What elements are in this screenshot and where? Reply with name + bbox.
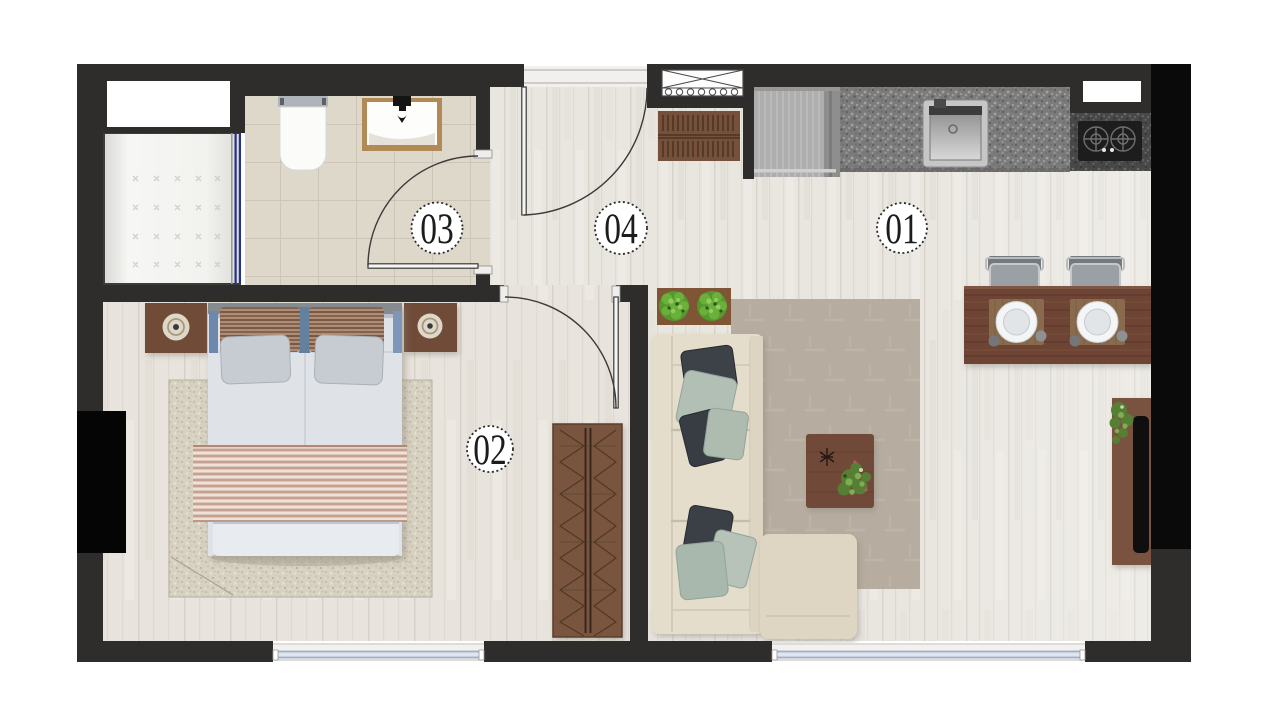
svg-text:01: 01 xyxy=(885,206,919,253)
svg-text:02: 02 xyxy=(473,427,507,474)
svg-text:04: 04 xyxy=(604,206,638,253)
svg-text:03: 03 xyxy=(420,206,454,253)
